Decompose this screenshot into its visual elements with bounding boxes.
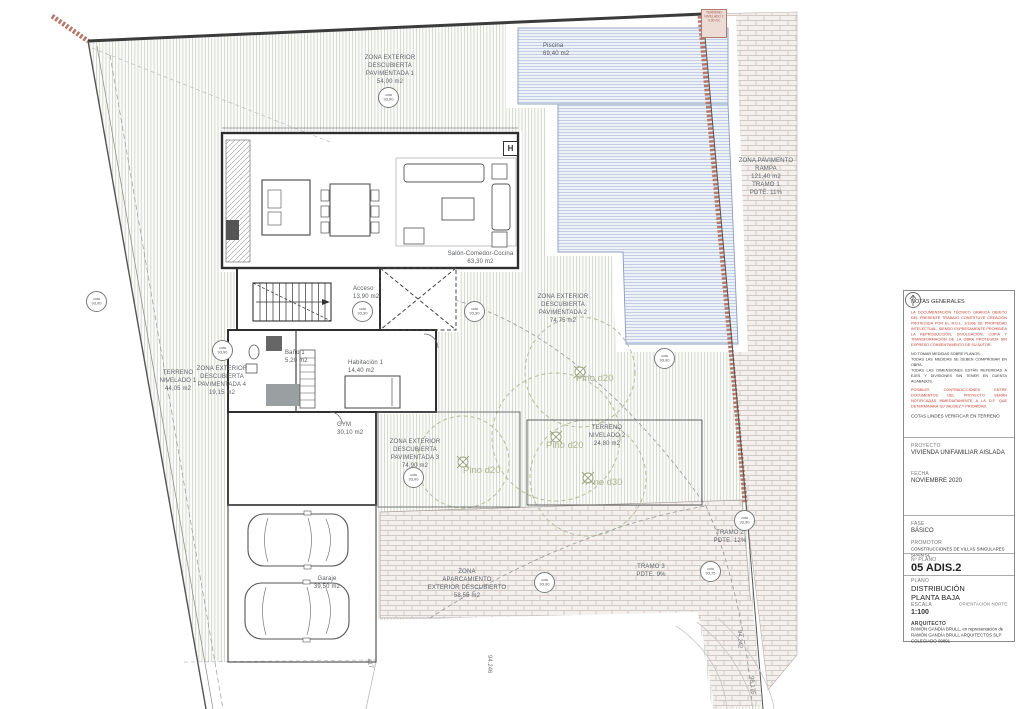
note-red-2: POSIBLES CONTRADICCIONES ENTRE DOCUMENTO… <box>911 388 1007 410</box>
general-notes: LA DOCUMENTACIÓN TÉCNICO GRÁFICA OBJETO … <box>911 310 1007 423</box>
note-red-1: LA DOCUMENTACIÓN TÉCNICO GRÁFICA OBJETO … <box>911 310 1007 348</box>
elevation-marker-6: cota93,90 <box>212 340 233 361</box>
proyecto-label: PROYECTO <box>911 443 941 449</box>
elevation-marker-9: cota93,90 <box>734 510 755 531</box>
plan-sheet: Piscina 69,40 m2 ZONA EXTERIOR DESCUBIER… <box>0 0 1024 709</box>
arquitecto-value: RAMÓN GANDÍA BRULL, en representación de… <box>911 627 1011 645</box>
label-pino-4: Pino d30 <box>585 477 623 488</box>
divider <box>904 575 1014 576</box>
h-marker: H <box>503 141 518 156</box>
label-piscina: Piscina 69,40 m2 <box>543 43 603 59</box>
label-zona-exterior-4: ZONA EXTERIOR DESCUBIERTA PAVIMENTADA 4 … <box>187 366 257 398</box>
fase-label: FASE <box>911 521 925 527</box>
title-block: NOTAS GENERALES LA DOCUMENTACIÓN TÉCNICO… <box>903 290 1015 642</box>
note-black: NO TOMAR MEDIDAS SOBRE PLANOS. TODAS LAS… <box>911 352 1007 385</box>
plano-value: DISTRIBUCIÓN PLANTA BAJA <box>911 584 965 602</box>
fecha-value: NOVIEMBRE 2020 <box>911 478 962 484</box>
label-pino-2: Pino d20 <box>546 440 584 451</box>
site-plan-drawing <box>0 0 1024 709</box>
label-zona-exterior-2: ZONA EXTERIOR DESCUBIERTA PAVIMENTADA 2 … <box>528 294 598 326</box>
label-zona-exterior-1: ZONA EXTERIOR DESCUBIERTA PAVIMENTADA 1 … <box>355 55 425 87</box>
elevation-marker-3: cota93,90 <box>464 301 485 322</box>
label-gym: GYM 30,10 m2 <box>337 422 377 438</box>
label-habitacion-1: Habitación 1 14,40 m2 <box>348 360 403 376</box>
divider <box>904 515 1014 516</box>
survey-mark-1: 94.246 <box>486 655 492 673</box>
elevation-marker-4: cota93,90 <box>654 348 675 369</box>
stairs <box>253 283 331 321</box>
label-tramo-2: TRAMO 2 PDTE. 12% <box>700 530 760 546</box>
num-plano-value: 05 ADIS.2 <box>911 562 961 574</box>
escala-value: 1:100 <box>911 609 929 616</box>
divider <box>904 437 1014 438</box>
promotor-label: PROMOTOR <box>911 540 942 546</box>
escala-label: ESCALA <box>911 602 932 608</box>
note-final: COTAS LINDES VERIFICAR EN TERRENO <box>911 413 1007 420</box>
label-rampa: ZONA PAVIMENTO RAMPA 121,40 m2 TRAMO 1 P… <box>731 158 801 198</box>
elevation-marker-2: cota93,90 <box>352 301 373 322</box>
label-zona-exterior-3: ZONA EXTERIOR DESCUBIERTA PAVIMENTADA 3 … <box>380 439 450 471</box>
elevation-marker-5: cota93,90 <box>86 291 107 312</box>
corner-terrain-box: TERRENO NIVELADO 2 9,90 m2 <box>701 9 727 38</box>
label-bano-1: Baño 1 5,20 m2 <box>285 350 325 366</box>
label-zona-aparcamiento: ZONA APARCAMIENTO EXTERIOR DESCUBIERTO 5… <box>419 569 515 601</box>
label-garaje: Garaje 39,50 m2 <box>297 576 357 592</box>
elevation-marker-8: cota93,90 <box>534 572 555 593</box>
survey-mark-3: 94.242 <box>736 630 743 649</box>
car-1 <box>248 511 348 569</box>
fecha-label: FECHA <box>911 471 929 477</box>
elevation-marker-1: cota93,90 <box>378 87 399 108</box>
label-pino-1: Pino d20 <box>576 373 614 384</box>
label-pino-3: Pino d20 <box>463 465 501 476</box>
label-acceso: Acceso 13,90 m2 <box>353 286 398 302</box>
label-tramo-3: TRAMO 3 PDTE. 9% <box>621 564 681 580</box>
elevation-marker-7: cota93,90 <box>403 467 424 488</box>
proyecto-value: VIVIENDA UNIFAMILIAR AISLADA <box>911 450 1005 456</box>
orientacion-label: ORIENTACIÓN NORTE <box>959 602 1013 608</box>
corner-terrain-label: TERRENO NIVELADO 2 9,90 m2 <box>702 10 726 23</box>
fase-value: BÁSICO <box>911 528 934 534</box>
divider <box>904 553 1014 554</box>
label-salon-comedor-cocina: Salón-Comedor-Cocina 63,30 m2 <box>433 251 528 267</box>
north-arrow-icon <box>904 291 922 309</box>
elevation-marker-10: cota93,75 <box>700 561 721 582</box>
